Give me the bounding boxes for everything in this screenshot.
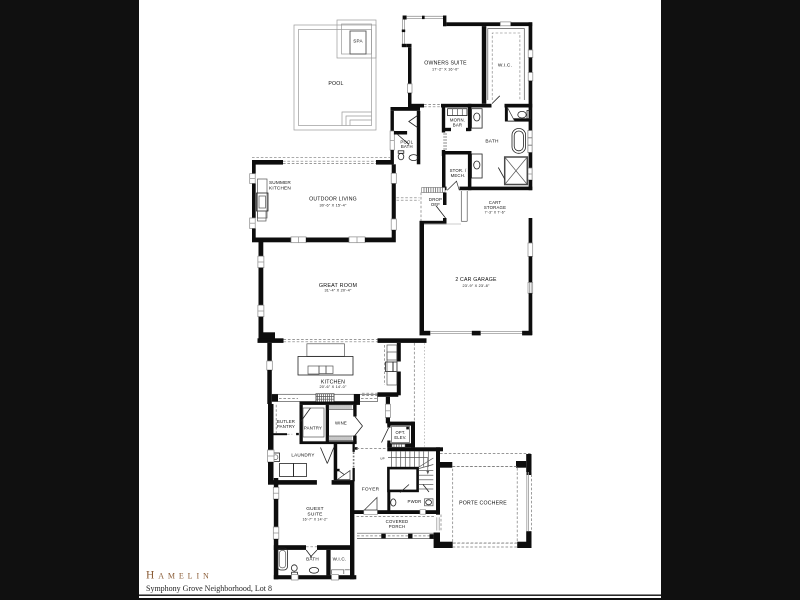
svg-text:16'-7" X 14'-2": 16'-7" X 14'-2" xyxy=(302,518,328,522)
svg-text:31'-4" X 20'-4": 31'-4" X 20'-4" xyxy=(325,289,352,293)
svg-text:30'-6" X 15'-4": 30'-6" X 15'-4" xyxy=(320,204,347,208)
svg-text:MECH.: MECH. xyxy=(451,173,466,178)
svg-text:PORCH: PORCH xyxy=(389,524,406,529)
svg-text:BATH: BATH xyxy=(485,138,499,144)
svg-text:KITCHEN: KITCHEN xyxy=(269,186,291,191)
svg-text:23'-9" X 23'-8": 23'-9" X 23'-8" xyxy=(463,284,490,288)
svg-text:BATH: BATH xyxy=(401,144,413,149)
svg-text:OUTDOOR LIVING: OUTDOOR LIVING xyxy=(309,197,357,203)
svg-text:20'-6" X 14'-0": 20'-6" X 14'-0" xyxy=(320,385,347,389)
svg-text:2 CAR GARAGE: 2 CAR GARAGE xyxy=(455,277,497,283)
svg-text:PORTE COCHERE: PORTE COCHERE xyxy=(459,501,507,507)
svg-text:PWDR: PWDR xyxy=(408,499,422,504)
svg-text:OFF: OFF xyxy=(431,202,440,207)
svg-text:LAUNDRY: LAUNDRY xyxy=(291,453,314,458)
svg-text:W.I.C.: W.I.C. xyxy=(333,557,347,562)
svg-text:Symphony Grove Neighborhood, L: Symphony Grove Neighborhood, Lot 8 xyxy=(146,584,272,593)
svg-text:PANTRY: PANTRY xyxy=(304,426,322,431)
svg-text:WINE: WINE xyxy=(335,421,347,426)
svg-text:SUMMER: SUMMER xyxy=(269,180,291,185)
svg-text:BAR: BAR xyxy=(453,123,462,128)
svg-text:UP: UP xyxy=(380,457,385,461)
svg-text:FOYER: FOYER xyxy=(362,486,380,492)
svg-text:STORAGE: STORAGE xyxy=(484,205,506,210)
svg-text:PANTRY: PANTRY xyxy=(277,424,295,429)
svg-text:ELEV.: ELEV. xyxy=(394,435,406,440)
svg-text:SUITE: SUITE xyxy=(307,512,322,518)
svg-text:Hamelin: Hamelin xyxy=(146,570,213,582)
svg-text:BATH: BATH xyxy=(306,557,319,562)
svg-text:7'-3" X 7'-6": 7'-3" X 7'-6" xyxy=(485,211,506,215)
svg-text:SPA: SPA xyxy=(353,39,363,44)
svg-text:POOL: POOL xyxy=(328,81,343,87)
svg-text:W.I.C.: W.I.C. xyxy=(498,63,512,69)
svg-text:OWNERS SUITE: OWNERS SUITE xyxy=(424,61,467,67)
svg-text:17'-2" X 16'-0": 17'-2" X 16'-0" xyxy=(432,67,459,71)
svg-text:GUEST: GUEST xyxy=(306,506,324,512)
